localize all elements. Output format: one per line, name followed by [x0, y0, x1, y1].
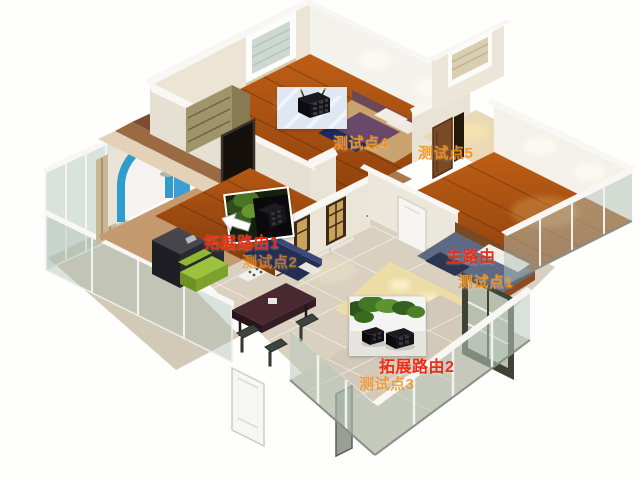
label-extender-1: 拓展路由1	[204, 236, 279, 252]
label-test-point-4: 测试点4	[333, 136, 388, 151]
label-test-point-3: 测试点3	[359, 377, 414, 392]
label-extender-2: 拓展路由2	[379, 360, 454, 376]
router-photo-extender-2	[349, 296, 426, 356]
label-test-point-5: 测试点5	[418, 146, 473, 161]
router-photo-top-bedroom	[277, 87, 347, 129]
label-test-point-2: 测试点2	[242, 255, 297, 270]
floorplan-screenshot: 测试点4 测试点5 拓展路由1 测试点2 主路由 测试点1 拓展路由2 测试点3	[0, 0, 640, 480]
balcony-door-left	[232, 368, 264, 446]
label-main-router: 主路由	[446, 250, 496, 266]
floorplan-render	[0, 0, 640, 480]
label-test-point-1: 测试点1	[458, 275, 513, 290]
